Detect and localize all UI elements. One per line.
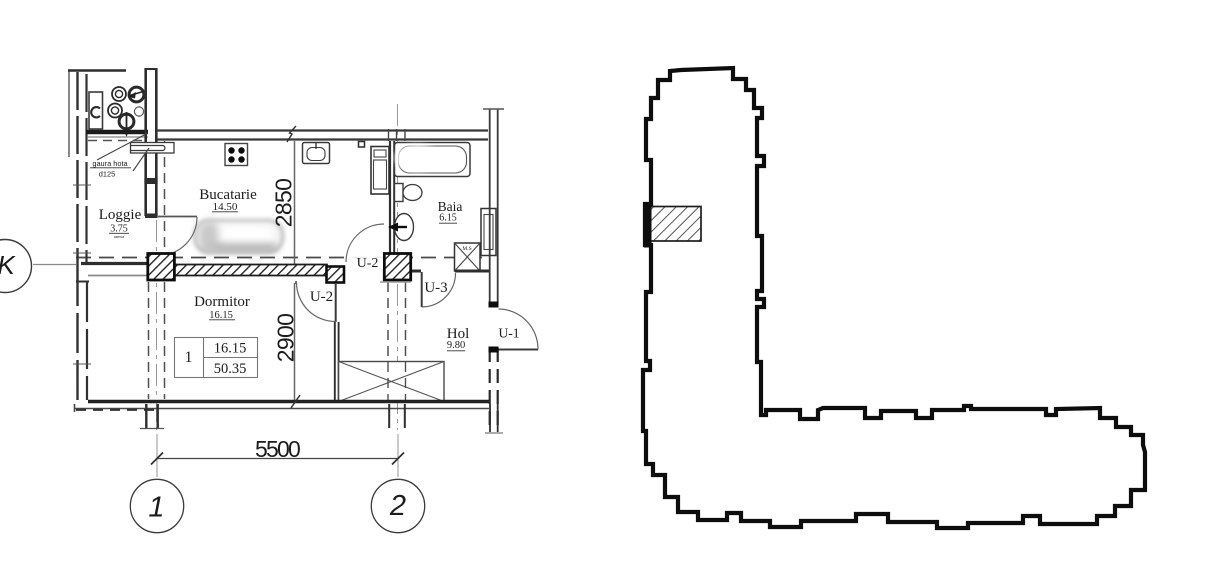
svg-text:gaura hota: gaura hota bbox=[92, 159, 128, 168]
svg-text:Loggie: Loggie bbox=[99, 207, 142, 223]
svg-text:6.15: 6.15 bbox=[439, 213, 457, 224]
svg-text:9.80: 9.80 bbox=[447, 340, 465, 351]
svg-text:K: K bbox=[0, 250, 16, 280]
svg-text:M.S: M.S bbox=[462, 246, 471, 252]
svg-text:d125: d125 bbox=[99, 170, 115, 179]
svg-text:1: 1 bbox=[185, 349, 193, 366]
svg-text:1: 1 bbox=[148, 492, 164, 524]
svg-text:14.50: 14.50 bbox=[213, 201, 238, 213]
svg-text:U-3: U-3 bbox=[424, 280, 447, 296]
svg-text:2: 2 bbox=[389, 490, 406, 522]
svg-text:5500: 5500 bbox=[255, 436, 300, 462]
svg-text:Dormitor: Dormitor bbox=[194, 294, 250, 310]
svg-text:2850: 2850 bbox=[271, 179, 297, 227]
svg-text:U-2: U-2 bbox=[357, 256, 379, 271]
svg-text:16.15: 16.15 bbox=[214, 341, 247, 357]
svg-text:U-1: U-1 bbox=[499, 326, 520, 341]
svg-text:anexa: anexa bbox=[114, 234, 125, 239]
svg-text:U-2: U-2 bbox=[310, 289, 333, 305]
svg-text:50.35: 50.35 bbox=[214, 361, 247, 377]
